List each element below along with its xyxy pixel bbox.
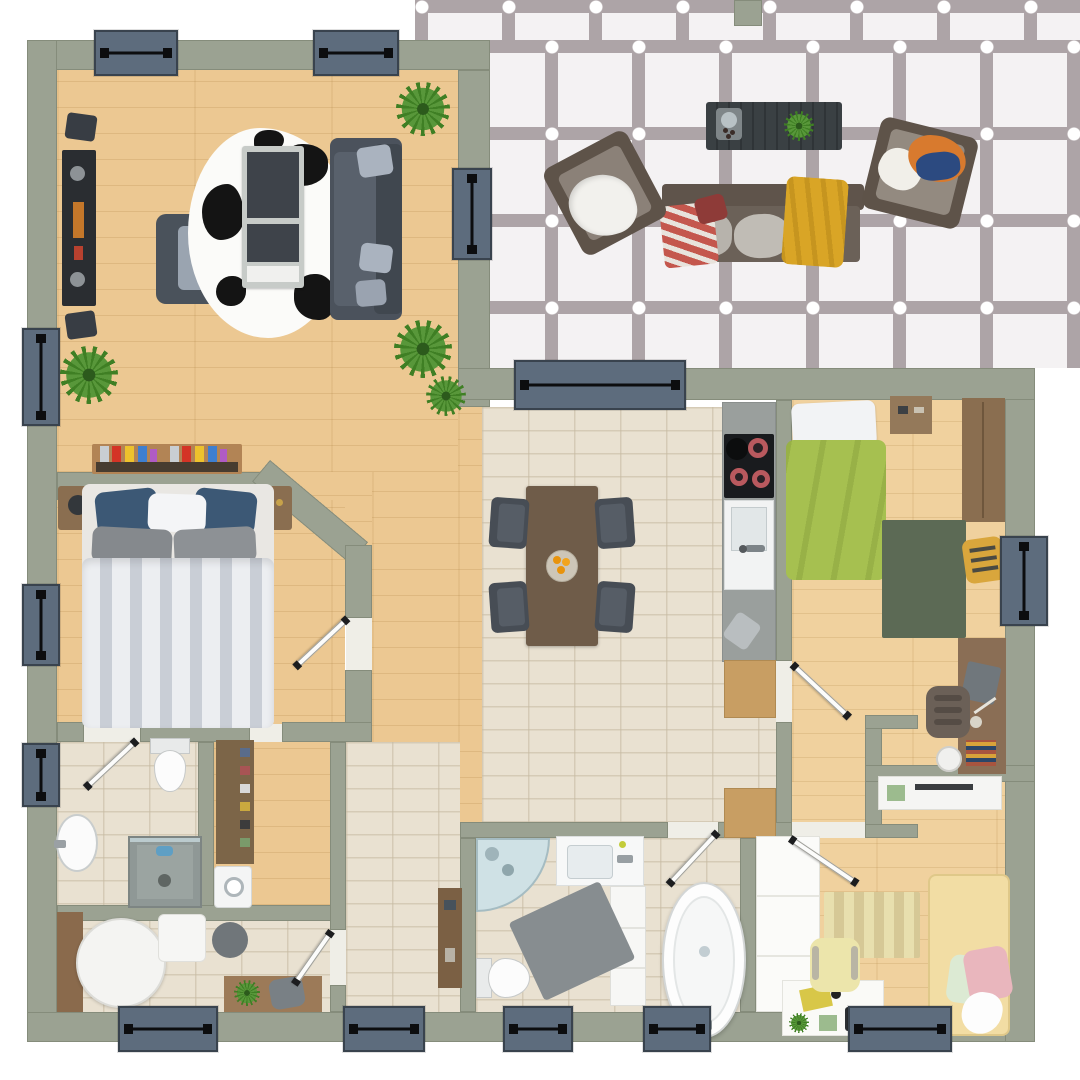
drinks-shelf — [92, 444, 242, 474]
kitchen-sink-unit — [724, 500, 774, 590]
shower-drain — [158, 874, 171, 887]
washing-machine — [214, 866, 252, 908]
window-bottom-bath2b — [643, 1006, 711, 1052]
nightstand-items — [276, 499, 283, 506]
bottle-blue — [138, 446, 147, 462]
wardrobe-seam — [982, 402, 984, 518]
sofa-pillow — [355, 279, 387, 308]
window-bottom-utility — [118, 1006, 218, 1052]
utility-round-table — [76, 918, 166, 1008]
hall-console — [438, 888, 462, 988]
chair-tuft — [934, 719, 962, 725]
closet-wardrobe — [216, 740, 254, 864]
terrace-pillar — [734, 0, 762, 26]
plant-living-e — [394, 320, 452, 378]
toilet-small-bath — [146, 738, 194, 794]
window-west-living — [22, 328, 60, 426]
wall-bracket-stub-bottom — [865, 824, 918, 838]
hanging-clothes — [240, 820, 250, 829]
bath2-faucet — [617, 855, 633, 863]
bath2-toilet — [476, 952, 532, 1004]
wall-terrace-south-a — [458, 368, 516, 400]
terrace-door — [452, 168, 492, 260]
nightstand-items — [914, 407, 924, 413]
striped-duvet — [82, 558, 274, 728]
kitchen-cabinet-upper — [724, 660, 776, 718]
burner — [748, 438, 768, 458]
basin-faucet — [54, 840, 66, 848]
shower-glass — [130, 838, 200, 842]
orange — [557, 566, 565, 574]
washer-door — [224, 877, 244, 897]
speaker-bottom — [64, 310, 97, 340]
chair-tuft — [934, 707, 962, 713]
berry-dots — [723, 128, 728, 133]
nightstand-items — [898, 406, 908, 414]
office-wardrobe — [962, 398, 1005, 522]
shelf-base — [96, 462, 238, 472]
desk-plant — [234, 980, 260, 1006]
washbasin-small-bath — [56, 814, 98, 872]
bed-duvet-green — [786, 440, 886, 580]
wall-terrace-west-a — [458, 70, 490, 173]
terrace-sofa — [662, 184, 864, 266]
stool-slat — [971, 555, 997, 563]
hanging-clothes — [240, 748, 250, 757]
bottle-silver — [100, 446, 109, 462]
bottle-red — [182, 446, 191, 462]
shower-head — [156, 846, 173, 856]
sofa-pillow — [356, 144, 394, 179]
burner — [730, 468, 748, 486]
window-west-bath — [22, 743, 60, 807]
dining-chair — [488, 581, 529, 634]
office-nightstand — [890, 396, 932, 434]
corridor-wood-floor-a — [458, 407, 482, 830]
window-east-office — [1000, 536, 1048, 626]
shower-small-bath — [128, 836, 202, 908]
plant-dining-corner — [426, 376, 466, 416]
chair-seat — [599, 503, 628, 543]
corner-sofa — [330, 138, 402, 320]
toilet-bowl — [154, 750, 186, 792]
tv-speaker-dot — [70, 166, 85, 181]
dining-table — [526, 486, 598, 646]
chair-seat — [599, 587, 628, 627]
cowhide-spot — [202, 184, 244, 240]
window-west-master — [22, 584, 60, 666]
bathtub-drain — [699, 946, 710, 957]
kids-desk-plant — [789, 1013, 809, 1033]
wall-closet-hall-a — [330, 742, 346, 930]
kitchen-faucet — [745, 545, 765, 552]
utility-stool — [212, 922, 248, 958]
bath2-sink-counter — [556, 836, 644, 886]
chair-arm — [851, 946, 858, 980]
terrace-jug — [721, 112, 737, 128]
window-bottom-kids — [848, 1006, 952, 1052]
office-bed-green — [786, 396, 886, 580]
sofa-pillow — [358, 242, 393, 274]
bottle-yellow — [195, 446, 204, 462]
chair-seat — [497, 503, 526, 543]
corner-shower-head — [485, 847, 499, 861]
bottle-violet — [220, 449, 227, 462]
tv-media-strip2 — [74, 246, 83, 260]
tv-console — [62, 150, 96, 306]
coffee-table — [242, 146, 304, 288]
threshold-utility-door — [330, 930, 346, 985]
bottle-violet — [150, 449, 157, 462]
coffee-table-shelf — [247, 266, 299, 282]
wall-west — [27, 40, 57, 1042]
bottle-silver — [170, 446, 179, 462]
bath2-soap — [619, 841, 626, 848]
window-bottom-corridor — [343, 1006, 425, 1052]
office-waste-bin — [936, 746, 962, 772]
wall-kitchen-b — [776, 722, 792, 838]
bath2-basin — [567, 845, 613, 879]
orange — [562, 558, 570, 566]
kids-chair-yellow — [810, 938, 860, 992]
utility-white-cabinet — [158, 914, 206, 962]
chair-tuft — [934, 695, 962, 701]
hanging-clothes — [240, 802, 250, 811]
frying-pan — [726, 438, 748, 460]
hanging-clothes — [240, 766, 250, 775]
coffee-table-top-b — [247, 224, 299, 262]
window-bottom-bath2a — [503, 1006, 573, 1052]
office-chair — [926, 686, 970, 738]
kids-sideboard — [878, 776, 1002, 810]
terrace-window-dining — [514, 360, 686, 410]
threshold-office-door — [776, 661, 792, 722]
hanging-clothes — [240, 784, 250, 793]
toilet-bowl — [488, 958, 530, 998]
yellow-throw — [781, 176, 849, 268]
chair-seat — [497, 587, 526, 627]
plant-living-ne — [396, 82, 450, 136]
window-top-right — [313, 30, 399, 76]
hanging-clothes — [240, 838, 250, 847]
office-rug — [882, 520, 966, 638]
console-item — [444, 900, 456, 910]
bottle-yellow — [125, 446, 134, 462]
wall-bath2-west — [460, 838, 476, 1012]
bottle-blue — [208, 446, 217, 462]
threshold-master-door — [346, 618, 372, 670]
dining-chair — [488, 497, 529, 550]
kitchen-cabinet-lower — [724, 788, 776, 838]
terrace-table-plant — [784, 111, 814, 141]
master-bed — [82, 484, 274, 728]
desk-mug — [970, 716, 982, 728]
wall-bed-bath-c — [282, 722, 372, 742]
kids-green-box — [819, 1015, 837, 1031]
tv-speaker-dot2 — [70, 272, 85, 287]
faucet-knob — [739, 545, 747, 553]
bathtub-inner — [673, 896, 735, 1024]
dining-chair — [594, 581, 635, 634]
pillow-white-center — [147, 493, 206, 533]
orange — [553, 556, 561, 564]
wall-bed-bath-a — [57, 722, 84, 742]
console-item — [445, 948, 455, 962]
sideboard-dark-strip — [915, 784, 973, 790]
floor-plan-canvas — [0, 0, 1080, 1080]
wall-bracket-stub-top — [865, 715, 918, 729]
burner — [752, 470, 770, 488]
window-top-left — [94, 30, 178, 76]
utility-desk — [224, 976, 322, 1012]
chair-arm — [812, 946, 819, 980]
speaker-top — [64, 112, 97, 142]
stool-slat — [969, 545, 995, 553]
corner-shower-drain — [502, 864, 514, 876]
plant-living-sw — [60, 346, 118, 404]
terrace-table — [706, 102, 842, 150]
cooktop — [724, 434, 774, 498]
coffee-table-top-a — [247, 152, 299, 218]
sideboard-green-box — [887, 785, 905, 801]
wall-bedroom-east-a — [345, 545, 372, 618]
stool-slat — [972, 565, 998, 573]
tv-media-strip — [73, 202, 84, 238]
desk-books — [966, 740, 996, 766]
bottle-red — [112, 446, 121, 462]
dining-chair — [594, 497, 635, 550]
